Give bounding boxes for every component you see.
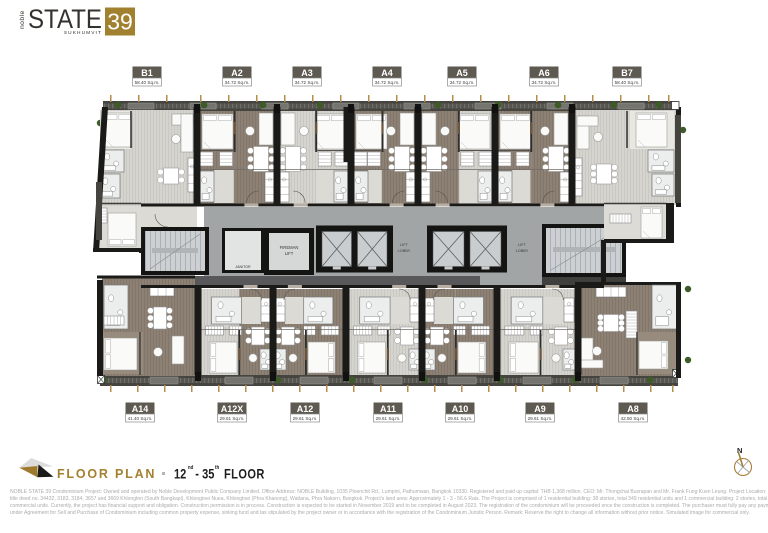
svg-text:A5: A5 [456, 68, 468, 78]
svg-text:FLOOR PLAN: FLOOR PLAN [57, 467, 156, 481]
svg-text:34.72 Sq.m.: 34.72 Sq.m. [450, 80, 475, 85]
svg-text:LIFT: LIFT [400, 243, 408, 247]
svg-text:LOBBY: LOBBY [516, 249, 529, 253]
svg-text:42.50 Sq.m.: 42.50 Sq.m. [621, 416, 646, 421]
svg-text:29.61 Sq.m.: 29.61 Sq.m. [293, 416, 318, 421]
svg-text:LIFT: LIFT [285, 251, 294, 256]
svg-text:A6: A6 [538, 68, 550, 78]
svg-text:LOBBY: LOBBY [398, 249, 411, 253]
svg-text:12: 12 [174, 466, 186, 481]
svg-text:A14: A14 [132, 404, 149, 414]
svg-text:34.72 Sq.m.: 34.72 Sq.m. [375, 80, 400, 85]
svg-text:29.61 Sq.m.: 29.61 Sq.m. [220, 416, 245, 421]
svg-text:34.72 Sq.m.: 34.72 Sq.m. [225, 80, 250, 85]
svg-text:29.61 Sq.m.: 29.61 Sq.m. [376, 416, 401, 421]
svg-text:58.40 Sq.m.: 58.40 Sq.m. [135, 80, 160, 85]
svg-text:JANITOR: JANITOR [235, 265, 251, 269]
svg-text:N: N [737, 446, 742, 455]
svg-text:41.40 Sq.m.: 41.40 Sq.m. [128, 416, 153, 421]
svg-text:FIREMAN: FIREMAN [280, 245, 299, 250]
svg-text:- 35: - 35 [195, 466, 214, 481]
svg-text:29.61 Sq.m.: 29.61 Sq.m. [528, 416, 553, 421]
svg-text:A4: A4 [381, 68, 393, 78]
svg-text:58.40 Sq.m.: 58.40 Sq.m. [615, 80, 640, 85]
svg-text:A12: A12 [297, 404, 314, 414]
svg-text:B1: B1 [141, 68, 153, 78]
svg-text:A11: A11 [380, 404, 396, 414]
svg-text:B7: B7 [621, 68, 633, 78]
svg-text:A9: A9 [534, 404, 546, 414]
svg-text:34.72 Sq.m.: 34.72 Sq.m. [295, 80, 320, 85]
svg-text:th: th [215, 465, 219, 472]
svg-text:34.72 Sq.m.: 34.72 Sq.m. [532, 80, 557, 85]
svg-text:A8: A8 [627, 404, 639, 414]
svg-text:FLOOR: FLOOR [224, 466, 265, 481]
svg-text:LIFT: LIFT [518, 243, 526, 247]
svg-text:nd: nd [188, 465, 194, 472]
svg-text:A12X: A12X [221, 404, 244, 414]
svg-text:A3: A3 [301, 68, 313, 78]
svg-text:A2: A2 [231, 68, 243, 78]
svg-text:29.61 Sq.m.: 29.61 Sq.m. [448, 416, 473, 421]
svg-text:A10: A10 [452, 404, 469, 414]
